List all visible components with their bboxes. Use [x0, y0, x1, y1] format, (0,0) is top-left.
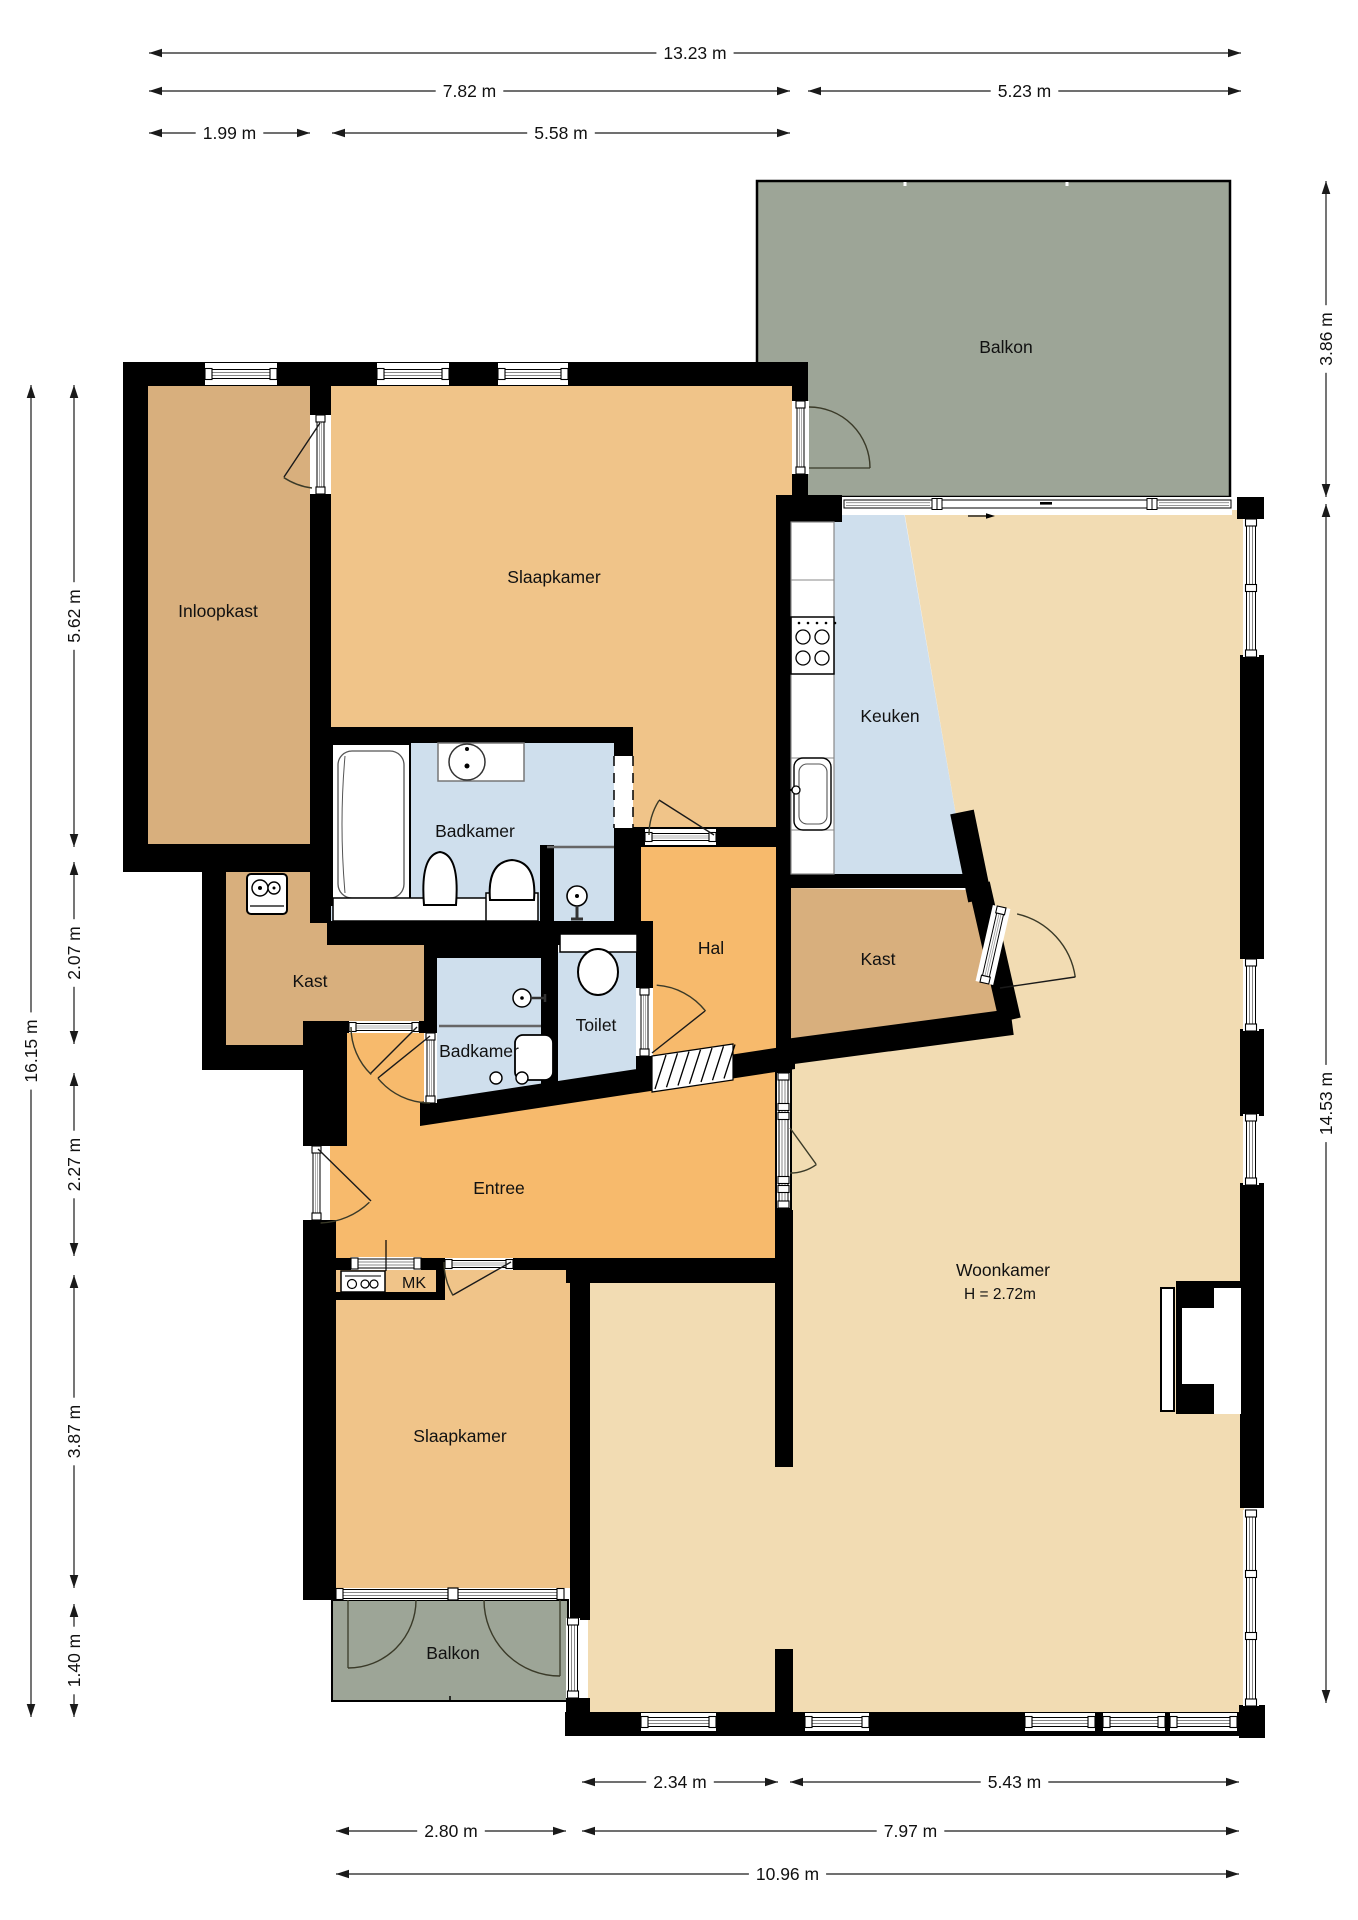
svg-text:Balkon: Balkon: [426, 1643, 480, 1663]
svg-text:Badkamer: Badkamer: [435, 821, 515, 841]
svg-text:Balkon: Balkon: [979, 337, 1033, 357]
svg-text:Kast: Kast: [860, 949, 895, 969]
svg-text:Entree: Entree: [473, 1178, 525, 1198]
svg-text:10.96 m: 10.96 m: [756, 1864, 819, 1884]
svg-text:MK: MK: [402, 1275, 426, 1292]
svg-text:Kast: Kast: [292, 971, 327, 991]
svg-text:13.23 m: 13.23 m: [663, 43, 726, 63]
svg-text:2.80 m: 2.80 m: [424, 1821, 478, 1841]
svg-text:16.15 m: 16.15 m: [21, 1019, 41, 1082]
svg-text:Slaapkamer: Slaapkamer: [507, 567, 601, 587]
svg-text:Toilet: Toilet: [576, 1015, 617, 1035]
svg-text:2.27 m: 2.27 m: [64, 1138, 84, 1192]
svg-text:14.53 m: 14.53 m: [1316, 1072, 1336, 1135]
svg-text:Inloopkast: Inloopkast: [178, 601, 258, 621]
svg-text:Hal: Hal: [698, 938, 724, 958]
svg-text:5.43 m: 5.43 m: [988, 1772, 1042, 1792]
svg-text:7.82 m: 7.82 m: [443, 81, 497, 101]
svg-text:7.97 m: 7.97 m: [884, 1821, 938, 1841]
svg-text:Badkamer: Badkamer: [439, 1041, 519, 1061]
svg-text:Woonkamer: Woonkamer: [956, 1260, 1050, 1280]
svg-text:Keuken: Keuken: [860, 706, 919, 726]
svg-text:1.40 m: 1.40 m: [64, 1634, 84, 1688]
svg-text:5.62 m: 5.62 m: [64, 589, 84, 643]
svg-text:Slaapkamer: Slaapkamer: [413, 1426, 507, 1446]
svg-text:5.23 m: 5.23 m: [998, 81, 1052, 101]
svg-text:H = 2.72m: H = 2.72m: [964, 1286, 1036, 1303]
svg-text:2.07 m: 2.07 m: [64, 926, 84, 980]
svg-text:1.99 m: 1.99 m: [203, 123, 257, 143]
svg-text:3.86 m: 3.86 m: [1316, 312, 1336, 366]
svg-text:5.58 m: 5.58 m: [534, 123, 588, 143]
svg-text:2.34 m: 2.34 m: [653, 1772, 707, 1792]
svg-text:3.87 m: 3.87 m: [64, 1405, 84, 1459]
